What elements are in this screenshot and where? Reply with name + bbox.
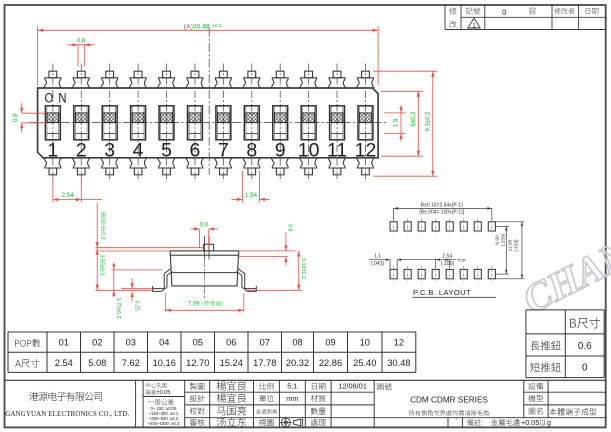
svg-text:12.70: 12.70 [186,358,209,368]
svg-text:7.62: 7.62 [122,358,140,368]
svg-text:0.6: 0.6 [77,37,86,44]
svg-text:22.86: 22.86 [319,358,342,368]
svg-text:1: 1 [472,22,476,29]
svg-text:3.15±0.2: 3.15±0.2 [300,258,306,279]
svg-text:mm: mm [286,394,298,403]
svg-text:01: 01 [59,338,69,348]
svg-text:[.100]: [.100] [441,261,454,267]
svg-text:': ' [456,419,457,425]
svg-text:CHANGYUAN: CHANGYUAN [516,167,611,322]
svg-text:7: 7 [218,139,229,161]
svg-text:15.24: 15.24 [220,358,243,368]
svg-text:2.54: 2.54 [442,254,452,260]
svg-text:5: 5 [161,139,172,161]
svg-text:17.78: 17.78 [253,358,276,368]
svg-text:2.54: 2.54 [61,192,74,199]
svg-text:4: 4 [133,139,144,161]
svg-text:07: 07 [260,338,270,348]
svg-text:06: 06 [226,338,236,348]
svg-text:0.25: 0.25 [133,301,139,312]
svg-text:02: 02 [92,338,102,348]
svg-text:[.259]: [.259] [500,234,506,246]
svg-text:0.6: 0.6 [287,224,293,232]
svg-text:)30.48: )30.48 [191,23,210,30]
svg-text:0.6: 0.6 [578,341,592,352]
svg-text:TYP.: TYP. [457,258,467,263]
svg-text:1: 1 [47,139,58,161]
svg-text:11.00: 11.00 [508,239,514,251]
svg-text:12: 12 [355,139,377,161]
svg-text:g: g [547,418,551,427]
svg-text:7.09: 7.09 [188,300,201,307]
svg-text:10: 10 [298,139,320,161]
svg-text:[.433]: [.433] [514,239,520,251]
svg-text:6.90: 6.90 [494,235,500,245]
svg-text:[B±.004=.100x(P-1)]: [B±.004=.100x(P-1)] [419,210,464,216]
svg-text:6±0.2: 6±0.2 [411,111,417,127]
svg-text:30.48: 30.48 [387,358,410,368]
svg-text:3.55±0.2: 3.55±0.2 [99,255,105,276]
svg-text:05: 05 [193,338,203,348]
svg-text:25.40: 25.40 [353,358,376,368]
svg-text:±0.2: ±0.2 [213,23,222,28]
svg-text:0.8: 0.8 [200,222,209,228]
svg-text:B±0.10=2.54x(P-1): B±0.10=2.54x(P-1) [421,203,463,209]
svg-text:6: 6 [190,139,201,161]
svg-text:8: 8 [246,139,257,161]
svg-text:08: 08 [292,338,302,348]
svg-text:20.32: 20.32 [286,358,309,368]
svg-text:CDM CDMR SERIES: CDM CDMR SERIES [410,395,488,404]
svg-text:1.1: 1.1 [374,254,381,260]
svg-text:[.043]: [.043] [371,261,384,267]
svg-text:+500~1000 :±0.3: +500~1000 :±0.3 [148,421,180,426]
svg-text:ON: ON [45,90,72,106]
svg-text:9: 9 [275,139,286,161]
svg-text:10.16: 10.16 [153,358,176,368]
svg-text:09: 09 [325,338,335,348]
svg-text:GANGYUAN ELECTRONICS CO., LTD.: GANGYUAN ELECTRONICS CO., LTD. [5,410,129,418]
svg-text:9.3±0.2: 9.3±0.2 [426,111,432,132]
svg-text:2: 2 [76,139,87,161]
svg-text:1.54: 1.54 [245,192,258,199]
svg-text:+0.05: +0.05 [521,418,539,427]
svg-text:10: 10 [360,338,370,348]
svg-text:5:1: 5:1 [287,382,297,391]
svg-text:2.54: 2.54 [55,358,73,368]
svg-text:04: 04 [159,338,169,348]
svg-text:±0.05: ±0.05 [157,390,171,396]
svg-text:0: 0 [582,363,588,374]
svg-text:5.08: 5.08 [88,358,106,368]
svg-text:3: 3 [104,139,115,161]
svg-text:1.8: 1.8 [393,118,399,127]
svg-text:1.75±0.2: 1.75±0.2 [115,298,121,319]
svg-text:0.9: 0.9 [13,113,19,122]
svg-text:03: 03 [126,338,136,348]
svg-text:12/08/01: 12/08/01 [338,382,367,391]
svg-text:(B)10.6±0.2: (B)10.6±0.2 [100,212,106,240]
svg-text:P.C.B. LAYOUT: P.C.B. LAYOUT [413,288,471,297]
svg-text:12: 12 [394,338,404,348]
svg-text:11: 11 [327,139,347,161]
svg-text:g: g [502,7,506,16]
